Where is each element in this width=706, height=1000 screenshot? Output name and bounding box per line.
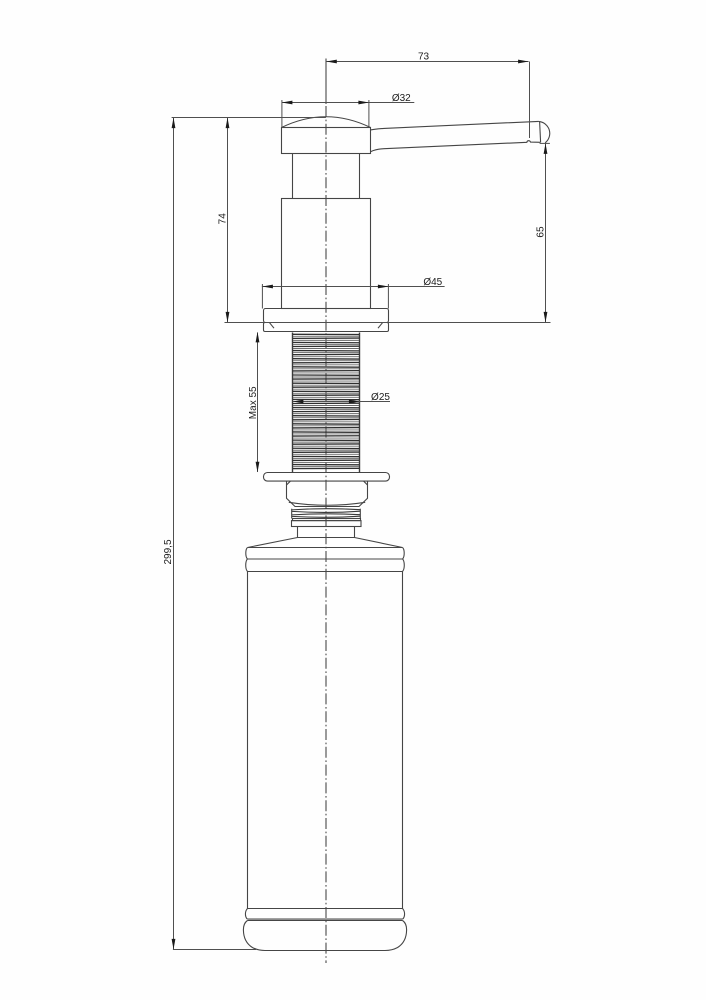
svg-text:73: 73 [418, 52, 430, 63]
svg-text:299,5: 299,5 [163, 539, 174, 564]
svg-text:65: 65 [536, 226, 547, 238]
svg-text:Max 55: Max 55 [248, 386, 259, 419]
svg-text:Ø32: Ø32 [392, 93, 411, 104]
svg-text:Ø25: Ø25 [371, 392, 390, 403]
svg-text:74: 74 [218, 213, 229, 225]
svg-text:Ø45: Ø45 [423, 277, 442, 288]
